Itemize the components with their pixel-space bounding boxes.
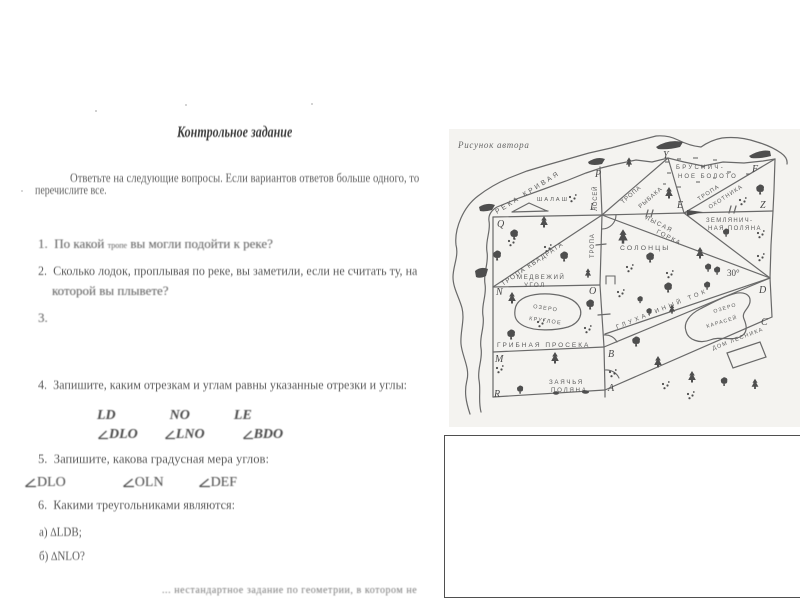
svg-text:30°: 30°	[727, 268, 740, 278]
svg-text:B: B	[608, 349, 614, 360]
svg-text:N: N	[495, 287, 504, 298]
svg-text:D: D	[758, 285, 767, 296]
svg-text:МЕДВЕЖИЙ: МЕДВЕЖИЙ	[517, 273, 565, 281]
svg-text:ЗАЯЧЬЯ: ЗАЯЧЬЯ	[549, 379, 584, 386]
svg-text:Z: Z	[760, 200, 766, 211]
svg-text:СОЛОНЦЫ: СОЛОНЦЫ	[620, 245, 670, 252]
svg-text:E: E	[676, 200, 683, 211]
svg-text:F: F	[751, 164, 759, 175]
svg-text:Q: Q	[497, 219, 505, 230]
svg-text:УГОЛ: УГОЛ	[524, 282, 546, 289]
svg-text:O: O	[589, 286, 596, 297]
svg-text:ЗЕМЛЯНИЧ-: ЗЕМЛЯНИЧ-	[706, 218, 753, 224]
svg-text:Рисунок автора: Рисунок автора	[457, 140, 530, 150]
svg-text:БРУСНИЧ-: БРУСНИЧ-	[676, 165, 725, 171]
svg-text:НАЯ ПОЛЯНА: НАЯ ПОЛЯНА	[708, 226, 762, 232]
svg-text:P: P	[594, 169, 601, 180]
svg-text:ТРОПА: ТРОПА	[590, 233, 596, 258]
svg-text:A: A	[607, 383, 615, 394]
svg-text:M: M	[494, 354, 504, 365]
svg-text:R: R	[493, 389, 500, 400]
svg-text:ЛОСЕЙ: ЛОСЕЙ	[591, 186, 599, 211]
svg-text:ГРИБНАЯ ПРОСЕКА: ГРИБНАЯ ПРОСЕКА	[497, 342, 590, 349]
svg-text:НОЕ БОЛОТО: НОЕ БОЛОТО	[678, 174, 738, 180]
svg-text:ШАЛАШ: ШАЛАШ	[537, 197, 569, 203]
